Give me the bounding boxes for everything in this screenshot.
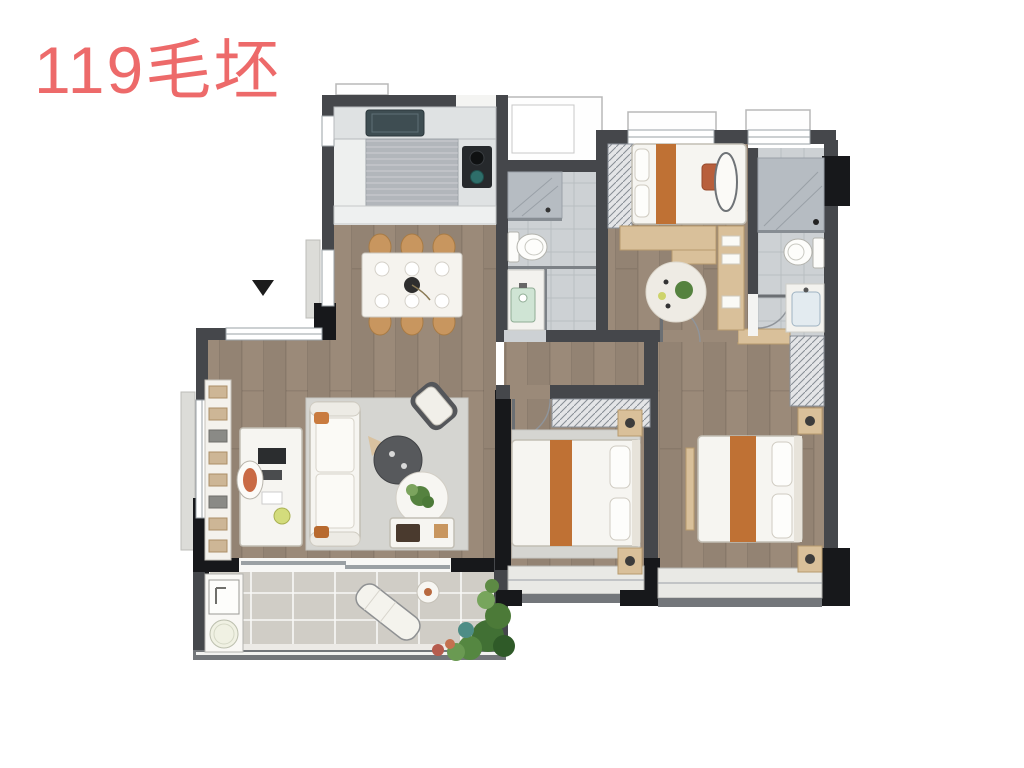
- bed-runner: [730, 436, 756, 542]
- bed-pillow: [772, 494, 792, 538]
- bay-strip-living: [181, 392, 195, 550]
- bed-pillow: [772, 442, 792, 486]
- bed-headboard: [794, 436, 802, 542]
- plate: [375, 262, 389, 276]
- lamp: [805, 416, 815, 426]
- bed-pillow: [610, 498, 630, 540]
- entrance-door-gap: [456, 95, 496, 107]
- bed-headboard: [632, 440, 640, 546]
- kettle: [471, 171, 484, 184]
- potted-plant: [675, 281, 693, 299]
- hall-cabinet: [738, 329, 790, 344]
- shower-drain: [546, 208, 551, 213]
- bed-pillow: [635, 185, 649, 217]
- shower-head: [813, 219, 819, 225]
- bedroom1-desk: [620, 226, 716, 250]
- balcony-door-panel: [241, 561, 346, 565]
- laundry-sink: [511, 288, 535, 322]
- tv-bench-pillow: [434, 524, 448, 538]
- notebook: [262, 492, 282, 504]
- bed-runner: [550, 440, 572, 546]
- book: [209, 518, 227, 530]
- tv-bench-item: [396, 524, 420, 542]
- utility-faucet-box: [209, 580, 239, 614]
- bay-windows: [496, 566, 822, 607]
- desk-flower: [274, 508, 290, 524]
- lamp: [805, 554, 815, 564]
- faucet: [804, 288, 809, 293]
- bed-bench: [686, 448, 694, 530]
- floor-plan-drawing: [0, 0, 1024, 768]
- direction-marker-icon: [252, 280, 274, 296]
- plate: [405, 294, 419, 308]
- toilet-tank: [813, 238, 824, 268]
- shower-glass: [758, 230, 824, 233]
- bathroom-opening: [504, 330, 546, 342]
- book: [209, 452, 227, 464]
- book: [209, 430, 227, 442]
- sofa-cushion: [316, 474, 354, 528]
- bed-pillow: [610, 446, 630, 488]
- bed-runner: [656, 144, 676, 224]
- accent-pillow: [314, 412, 329, 424]
- dining-area: [362, 234, 462, 335]
- accent-pillow: [314, 526, 329, 538]
- plate: [435, 294, 449, 308]
- window-sill-top-left: [336, 84, 388, 95]
- ensuite-sink: [792, 292, 820, 326]
- lamp: [625, 556, 635, 566]
- sofa-cushion: [316, 418, 354, 472]
- faucet: [519, 283, 527, 288]
- window-sill-ensuite: [746, 110, 810, 132]
- plate: [435, 262, 449, 276]
- balcony-door-panel: [345, 565, 450, 569]
- book: [209, 496, 227, 508]
- plate: [375, 294, 389, 308]
- bedroom1-chair: [715, 153, 737, 211]
- shower-pan: [508, 172, 562, 218]
- book: [209, 386, 227, 398]
- book: [209, 474, 227, 486]
- ac-platform-inner: [512, 105, 574, 153]
- burner: [470, 151, 484, 165]
- floor-plan-image: 119毛坯: [0, 0, 1024, 768]
- book: [209, 540, 227, 552]
- kitchen-counter-bottom: [334, 206, 496, 224]
- plate: [405, 262, 419, 276]
- lamp: [625, 418, 635, 428]
- bookshelf: [205, 380, 231, 560]
- book: [209, 408, 227, 420]
- window-sill-bedroom1: [628, 112, 716, 132]
- shower-glass: [508, 218, 562, 221]
- bed-pillow: [635, 149, 649, 181]
- laptop: [258, 448, 286, 464]
